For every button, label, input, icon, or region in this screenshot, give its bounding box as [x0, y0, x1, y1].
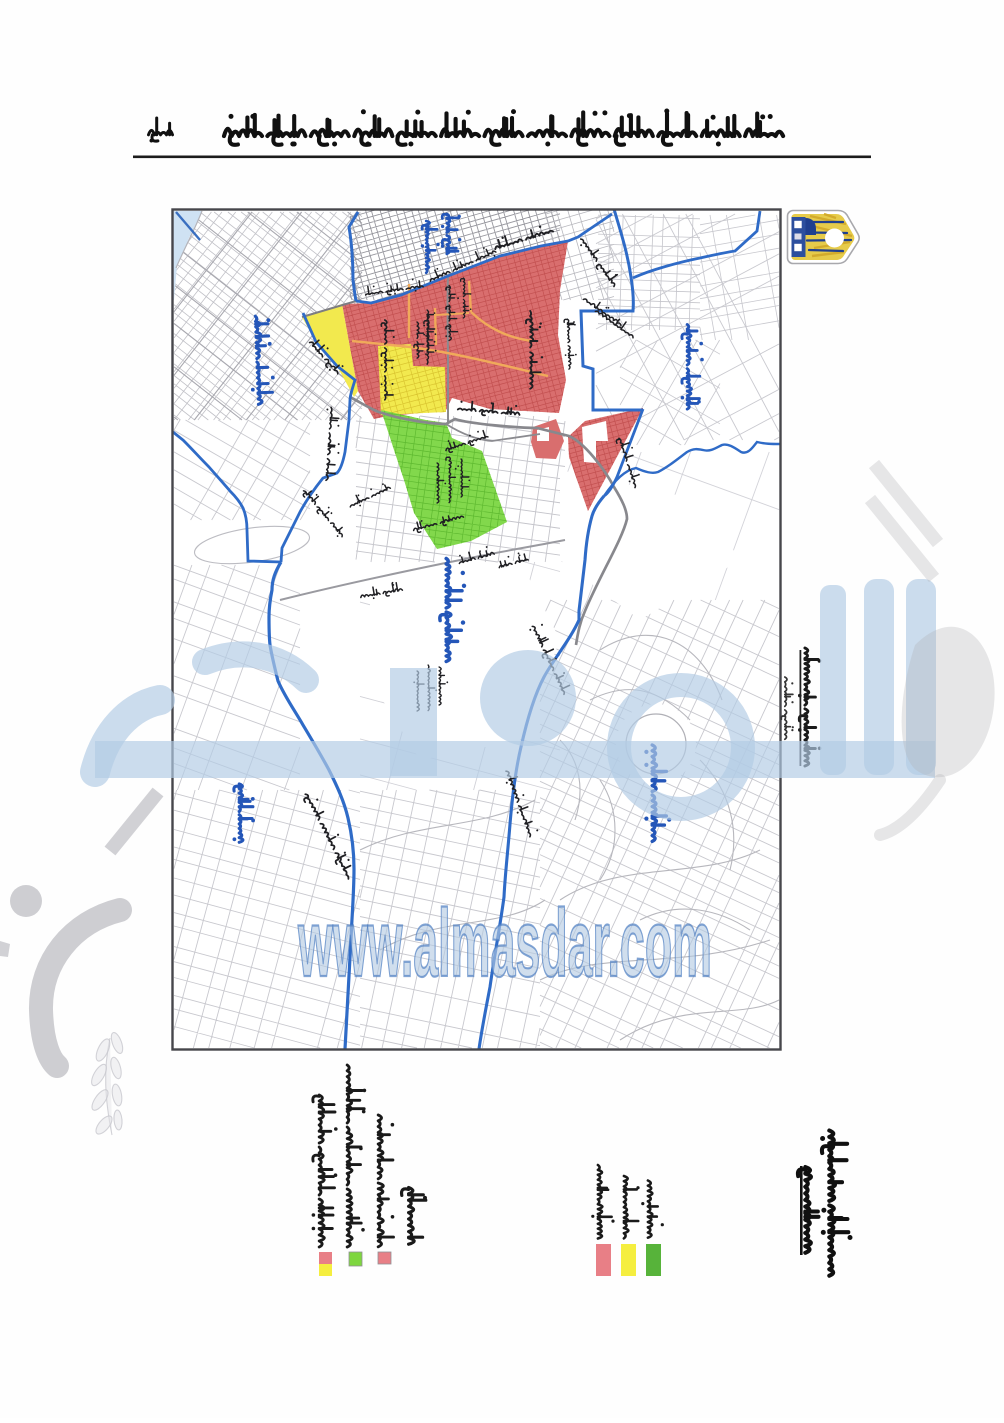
svg-text:www.almasdar.com: www.almasdar.com — [298, 890, 712, 997]
